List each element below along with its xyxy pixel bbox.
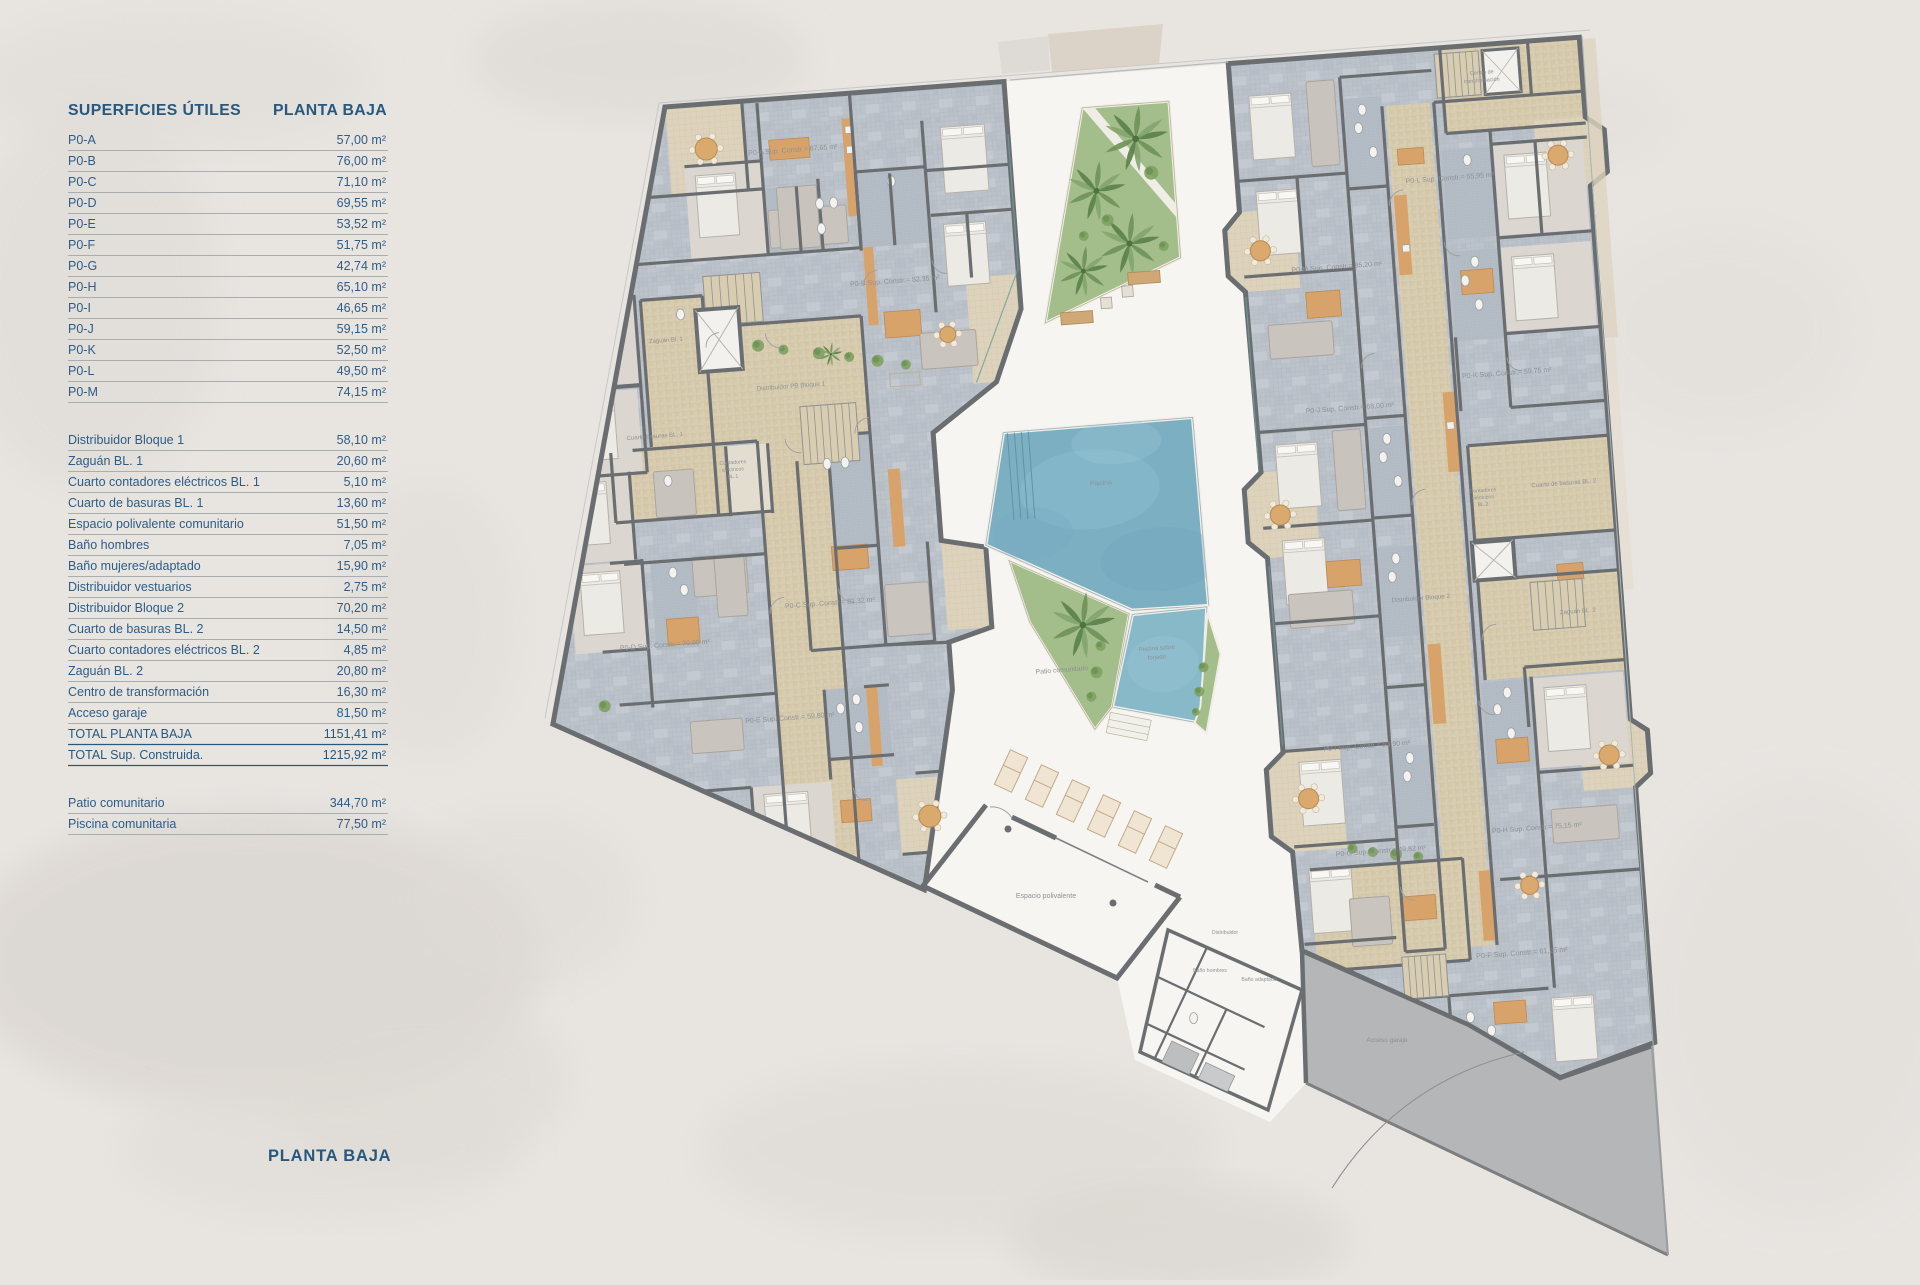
svg-text:P0-G: P0-G bbox=[68, 259, 97, 273]
svg-text:57,00 m²: 57,00 m² bbox=[337, 133, 386, 147]
svg-text:Acceso garaje: Acceso garaje bbox=[1366, 1037, 1408, 1044]
svg-text:P0-H: P0-H bbox=[68, 280, 96, 294]
svg-text:7,05 m²: 7,05 m² bbox=[344, 538, 386, 552]
svg-text:Acceso garaje: Acceso garaje bbox=[68, 706, 147, 720]
svg-text:BL.2: BL.2 bbox=[1477, 502, 1488, 509]
svg-text:P0-B: P0-B bbox=[68, 154, 96, 168]
svg-text:51,50 m²: 51,50 m² bbox=[337, 517, 386, 531]
svg-text:77,50 m²: 77,50 m² bbox=[337, 817, 386, 831]
svg-text:71,10 m²: 71,10 m² bbox=[337, 175, 386, 189]
svg-text:1151,41 m²: 1151,41 m² bbox=[324, 727, 386, 741]
svg-text:Cuarto contadores eléctricos B: Cuarto contadores eléctricos BL. 1 bbox=[68, 475, 260, 489]
svg-text:Baño mujeres/adaptado: Baño mujeres/adaptado bbox=[68, 559, 201, 573]
svg-text:Piscina comunitaria: Piscina comunitaria bbox=[68, 817, 176, 831]
svg-text:20,80 m²: 20,80 m² bbox=[337, 664, 386, 678]
svg-text:69,55 m²: 69,55 m² bbox=[337, 196, 386, 210]
svg-text:344,70 m²: 344,70 m² bbox=[330, 796, 386, 810]
svg-text:PLANTA BAJA: PLANTA BAJA bbox=[273, 102, 387, 119]
svg-text:Baño hombres: Baño hombres bbox=[68, 538, 149, 552]
svg-text:BL.1: BL.1 bbox=[727, 474, 738, 481]
svg-text:PLANTA BAJA: PLANTA BAJA bbox=[268, 1147, 391, 1165]
svg-text:74,15 m²: 74,15 m² bbox=[337, 385, 386, 399]
svg-text:Centro de transformación: Centro de transformación bbox=[68, 685, 209, 699]
svg-text:Patio comunitario: Patio comunitario bbox=[68, 796, 165, 810]
svg-text:Zaguán BL. 1: Zaguán BL. 1 bbox=[68, 454, 143, 468]
svg-text:Baño hombres: Baño hombres bbox=[1193, 968, 1227, 974]
svg-text:58,10 m²: 58,10 m² bbox=[337, 433, 386, 447]
svg-text:P0-I: P0-I bbox=[68, 301, 91, 315]
svg-text:Cuarto de basuras BL. 1: Cuarto de basuras BL. 1 bbox=[68, 496, 204, 510]
svg-text:49,50 m²: 49,50 m² bbox=[337, 364, 386, 378]
svg-text:Distribuidor: Distribuidor bbox=[1212, 930, 1239, 936]
svg-text:TOTAL Sup. Construida.: TOTAL Sup. Construida. bbox=[68, 748, 203, 762]
svg-text:5,10 m²: 5,10 m² bbox=[344, 475, 386, 489]
svg-text:16,30 m²: 16,30 m² bbox=[337, 685, 386, 699]
svg-text:2,75 m²: 2,75 m² bbox=[344, 580, 386, 594]
svg-text:4,85 m²: 4,85 m² bbox=[344, 643, 386, 657]
svg-text:P0-E: P0-E bbox=[68, 217, 96, 231]
svg-text:P0-D: P0-D bbox=[68, 196, 96, 210]
svg-text:81,50 m²: 81,50 m² bbox=[337, 706, 386, 720]
svg-text:14,50 m²: 14,50 m² bbox=[337, 622, 386, 636]
svg-text:59,15 m²: 59,15 m² bbox=[337, 322, 386, 336]
svg-text:SUPERFICIES ÚTILES: SUPERFICIES ÚTILES bbox=[68, 100, 241, 119]
svg-text:20,60 m²: 20,60 m² bbox=[337, 454, 386, 468]
svg-text:P0-A: P0-A bbox=[68, 133, 96, 147]
svg-text:P0-M: P0-M bbox=[68, 385, 98, 399]
svg-text:Zaguán BL. 2: Zaguán BL. 2 bbox=[68, 664, 143, 678]
svg-text:Distribuidor vestuarios: Distribuidor vestuarios bbox=[68, 580, 192, 594]
svg-text:42,74 m²: 42,74 m² bbox=[337, 259, 386, 273]
svg-text:P0-L: P0-L bbox=[68, 364, 94, 378]
svg-text:15,90 m²: 15,90 m² bbox=[337, 559, 386, 573]
svg-text:Distribuidor Bloque 2: Distribuidor Bloque 2 bbox=[68, 601, 184, 615]
svg-text:52,50 m²: 52,50 m² bbox=[337, 343, 386, 357]
svg-text:P0-J: P0-J bbox=[68, 322, 94, 336]
svg-text:1215,92 m²: 1215,92 m² bbox=[323, 748, 386, 762]
svg-text:13,60 m²: 13,60 m² bbox=[337, 496, 386, 510]
svg-text:76,00 m²: 76,00 m² bbox=[337, 154, 386, 168]
svg-text:51,75 m²: 51,75 m² bbox=[337, 238, 386, 252]
svg-text:Espacio polivalente comunitari: Espacio polivalente comunitario bbox=[68, 517, 244, 531]
svg-text:Cuarto de basuras BL. 2: Cuarto de basuras BL. 2 bbox=[68, 622, 204, 636]
svg-text:Baño adaptado: Baño adaptado bbox=[1241, 977, 1276, 983]
svg-text:Espacio polivalente: Espacio polivalente bbox=[1016, 893, 1076, 900]
svg-text:Distribuidor Bloque 1: Distribuidor Bloque 1 bbox=[68, 433, 184, 447]
svg-text:TOTAL PLANTA BAJA: TOTAL PLANTA BAJA bbox=[68, 727, 193, 741]
svg-text:53,52 m²: 53,52 m² bbox=[337, 217, 386, 231]
svg-text:P0-F: P0-F bbox=[68, 238, 95, 252]
svg-text:P0-C: P0-C bbox=[68, 175, 96, 189]
svg-text:46,65 m²: 46,65 m² bbox=[337, 301, 386, 315]
svg-text:65,10 m²: 65,10 m² bbox=[337, 280, 386, 294]
svg-text:Cuarto contadores eléctricos B: Cuarto contadores eléctricos BL. 2 bbox=[68, 643, 260, 657]
svg-text:70,20 m²: 70,20 m² bbox=[337, 601, 386, 615]
svg-text:P0-K: P0-K bbox=[68, 343, 96, 357]
